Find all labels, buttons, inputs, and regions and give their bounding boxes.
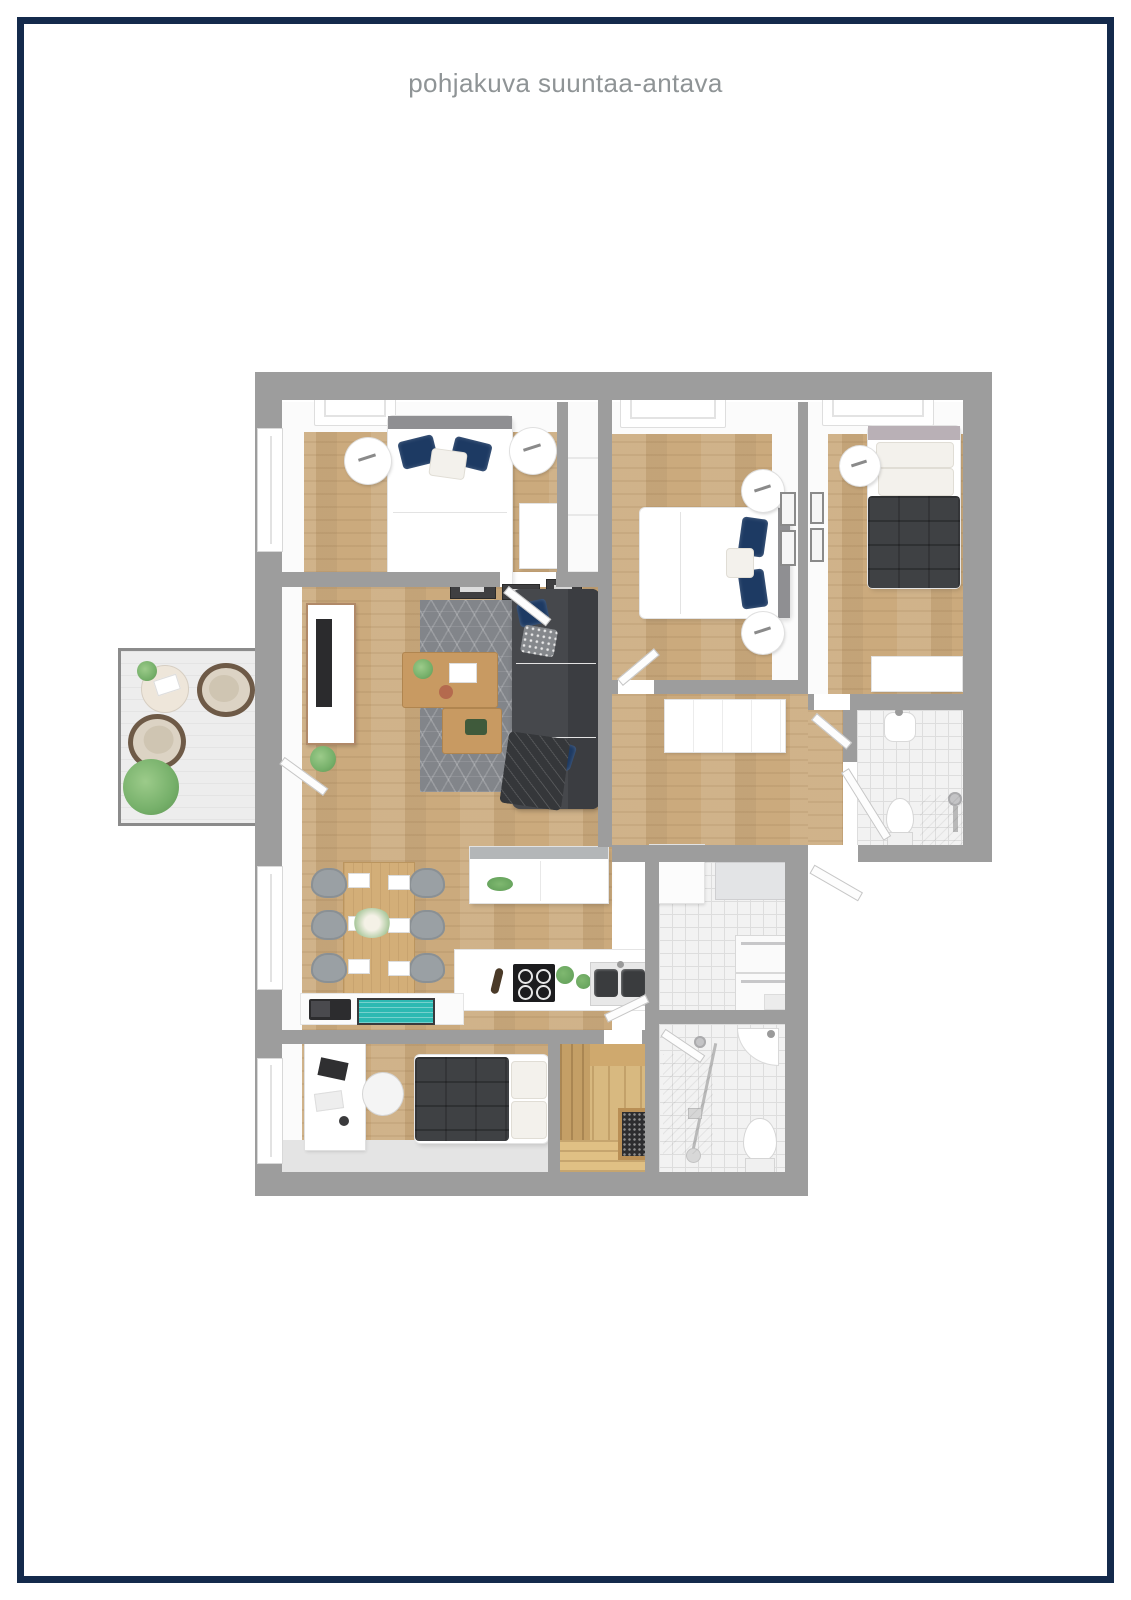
wall-outer-right-upper — [963, 400, 992, 862]
dining-chair — [311, 953, 347, 983]
washer — [735, 935, 791, 973]
sink-basin — [594, 969, 618, 997]
room-living-kitchen — [282, 587, 612, 1030]
bedroom3-single-bed — [868, 426, 960, 588]
shower-head — [694, 1036, 706, 1048]
sauna-bench — [560, 1044, 590, 1140]
bedroom1-wall-face-left — [282, 402, 304, 572]
throw-blanket — [499, 731, 570, 811]
flower-centerpiece — [352, 908, 392, 938]
wall-outer-bottom — [255, 1172, 808, 1196]
island-bowl — [487, 877, 513, 891]
pillow — [520, 624, 558, 657]
room-sauna — [560, 1044, 645, 1172]
room-hallway — [612, 694, 808, 845]
utensil — [490, 967, 504, 994]
bedroom1-double-bed — [388, 416, 512, 596]
table-tray — [465, 719, 487, 735]
wall-bedroom4-sauna-divider — [548, 1044, 560, 1172]
tv-sideboard — [306, 603, 356, 745]
table-bowl — [439, 685, 453, 699]
wall-central-vertical — [598, 400, 612, 847]
picture-frame — [780, 530, 796, 566]
wall-bedroom2-south-a — [612, 680, 618, 694]
dining-chair — [409, 910, 445, 940]
pillow — [511, 1101, 547, 1139]
room-bedroom-1 — [282, 402, 557, 572]
wall-bath-south — [858, 845, 992, 862]
wall-utility-shower-divider — [659, 1010, 785, 1024]
office-chair — [362, 1072, 404, 1116]
wall-bedroom1-right — [557, 402, 568, 572]
island-seam — [540, 861, 541, 901]
wall-bedroom1-south-b — [556, 572, 598, 587]
wall-bedroom3-south-b — [850, 694, 992, 710]
wall-bedroom4-north-a — [282, 1030, 604, 1044]
step — [764, 994, 786, 1010]
floor-plan — [0, 0, 1131, 1600]
pillow — [511, 1061, 547, 1099]
coffee-table-large — [402, 652, 498, 708]
place-setting — [348, 959, 370, 974]
picture-frame — [810, 492, 824, 524]
living-wall-face-left — [282, 587, 302, 1030]
tv — [316, 619, 332, 707]
dining-chair — [409, 953, 445, 983]
wall-utility-west — [645, 862, 659, 1172]
headboard — [388, 416, 512, 429]
laptop — [309, 999, 351, 1020]
bedroom2-double-bed — [640, 508, 790, 618]
bedroom1-window — [257, 428, 283, 552]
entrance-door — [810, 865, 863, 902]
dining-chair — [409, 868, 445, 898]
desk-shelf — [300, 993, 464, 1025]
bedroom4-window — [257, 1058, 283, 1164]
wall-bedroom2-3-divider — [798, 402, 808, 694]
sauna-bench-upper — [590, 1044, 645, 1066]
nightstand — [510, 428, 556, 474]
burner — [536, 985, 551, 1000]
wall-bedroom4-north-b — [642, 1030, 645, 1044]
closet — [568, 402, 598, 572]
burner — [518, 969, 533, 984]
papers — [314, 1090, 344, 1112]
pillow — [876, 442, 954, 468]
table-book — [449, 663, 477, 683]
living-plant — [310, 746, 336, 772]
desk-lamp — [339, 1116, 349, 1126]
duvet — [868, 496, 960, 588]
table-plant — [413, 659, 433, 679]
bathroom-sink — [884, 712, 916, 742]
room-balcony — [118, 648, 264, 826]
sink-basin — [621, 969, 645, 997]
hall-sideboard — [665, 700, 785, 752]
pillow — [428, 448, 468, 481]
toilet — [743, 1118, 777, 1162]
wall-outer-right-lower — [785, 862, 808, 1172]
monitor — [317, 1057, 348, 1080]
wall-bedroom2-south-b — [654, 680, 798, 694]
kitchen-counter — [455, 950, 655, 1010]
place-setting — [388, 875, 410, 890]
dining-chair — [311, 910, 347, 940]
headboard — [868, 426, 960, 440]
toilet — [886, 798, 914, 836]
burner — [536, 969, 551, 984]
dining-chair — [311, 868, 347, 898]
duvet — [415, 1057, 509, 1141]
room-bedroom-3 — [808, 402, 963, 694]
duvet-fold — [393, 512, 507, 513]
coffee-table-small — [442, 708, 502, 754]
nightstand — [840, 446, 880, 486]
balcony-table-plant — [137, 661, 157, 681]
teal-tray — [357, 998, 435, 1025]
bedroom3-dresser — [872, 657, 962, 691]
picture-frame — [810, 528, 824, 562]
pillow — [726, 548, 754, 578]
burner — [518, 985, 533, 1000]
pillow — [878, 468, 954, 496]
bedroom1-dresser — [520, 504, 558, 568]
cooktop — [513, 964, 555, 1002]
place-setting — [348, 873, 370, 888]
bedroom4-single-bed — [415, 1055, 548, 1143]
room-bedroom-2 — [612, 402, 798, 680]
place-setting — [388, 961, 410, 976]
sofa-seam — [516, 663, 597, 664]
faucet — [617, 961, 624, 968]
living-window — [257, 866, 283, 990]
nightstand — [742, 470, 784, 512]
kitchen-island — [470, 847, 608, 903]
balcony-chair — [197, 663, 255, 717]
shower-floor — [920, 795, 963, 845]
faucet — [767, 1030, 775, 1038]
wall-bedroom1-south-a — [282, 572, 500, 587]
island-counter-top — [470, 847, 608, 859]
nightstand — [742, 612, 784, 654]
toilet-tank — [745, 1158, 775, 1173]
nightstand — [345, 438, 391, 484]
toilet-tank — [887, 832, 913, 846]
balcony-plant — [123, 759, 179, 815]
wall-hall-south — [612, 845, 808, 862]
bedroom4-wall-face-left — [282, 1044, 302, 1140]
wall-outer-top — [255, 372, 992, 400]
duvet-fold — [680, 512, 681, 613]
shower-floor — [663, 1054, 713, 1154]
herb-pot — [576, 974, 591, 989]
wall-cabinets — [715, 862, 787, 900]
herb-pot — [556, 966, 574, 984]
sofa-back — [568, 589, 600, 809]
wall-bedroom3-south-a — [808, 694, 814, 710]
picture-frame — [780, 492, 796, 526]
corner-sofa — [512, 589, 600, 809]
room-bedroom-4 — [282, 1044, 548, 1172]
bedroom4-desk — [305, 1032, 365, 1150]
